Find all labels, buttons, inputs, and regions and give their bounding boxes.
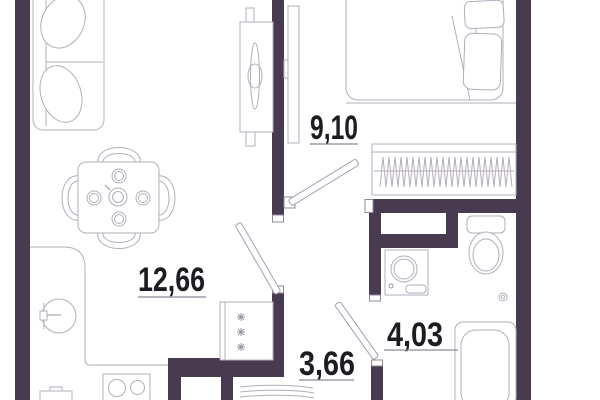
entry-wall-stub-left: [168, 377, 181, 400]
wall-cap: [273, 215, 284, 222]
area-label-hallway: 3,66: [299, 345, 355, 383]
holder-icon: [499, 293, 507, 301]
door-swing-icon: [288, 159, 359, 206]
hallway-wall: [272, 293, 284, 360]
tv-panel-icon: [284, 6, 299, 143]
chair-icon: [98, 232, 140, 249]
area-label-living-kitchen: 12,66: [138, 261, 205, 299]
dining-table-set: [62, 148, 175, 249]
floor-plan: 12,66 9,10 3,66 4,03: [0, 0, 600, 400]
partition-wall-bedroom: [272, 0, 284, 215]
wardrobe-icon: [372, 144, 516, 195]
bathroom-wall-left: [369, 213, 381, 295]
chair-icon: [157, 176, 175, 220]
area-label-bedroom: 9,10: [310, 109, 358, 147]
bed-icon: [346, 0, 516, 103]
entry-wall-stub-mid: [221, 377, 233, 400]
bathroom-wall-top: [373, 199, 516, 213]
duct-shaft-bottom: [381, 234, 458, 248]
exterior-wall-right: [516, 0, 531, 400]
bathtub-icon: [455, 322, 516, 400]
door-swing-icon: [235, 222, 281, 294]
pillow-icon: [463, 33, 502, 90]
sofa-icon: [33, 0, 104, 130]
chair-icon: [62, 176, 80, 220]
wall-cap: [365, 200, 373, 213]
area-label-bathroom: 4,03: [387, 316, 443, 354]
bathroom-wall-stub: [371, 366, 383, 400]
fridge-icon: [220, 302, 273, 360]
entry-wall-bar: [168, 358, 284, 377]
wall-cap: [372, 360, 383, 366]
washing-machine-icon: [385, 250, 428, 295]
stove-icon: [103, 374, 150, 400]
exterior-wall-left: [15, 0, 30, 400]
toilet-icon: [467, 216, 505, 274]
pillow-icon: [464, 0, 504, 29]
shoe-rack-icon: [240, 385, 314, 398]
floor-plan-canvas: 12,66 9,10 3,66 4,03: [0, 0, 600, 400]
tv-stand-icon: [240, 8, 273, 146]
tap-icon: [40, 311, 47, 320]
sink-icon: [40, 299, 76, 333]
kitchen-cabinet-icon: [40, 387, 72, 400]
duct-shaft-right: [446, 213, 458, 234]
wall-cap: [370, 295, 381, 301]
